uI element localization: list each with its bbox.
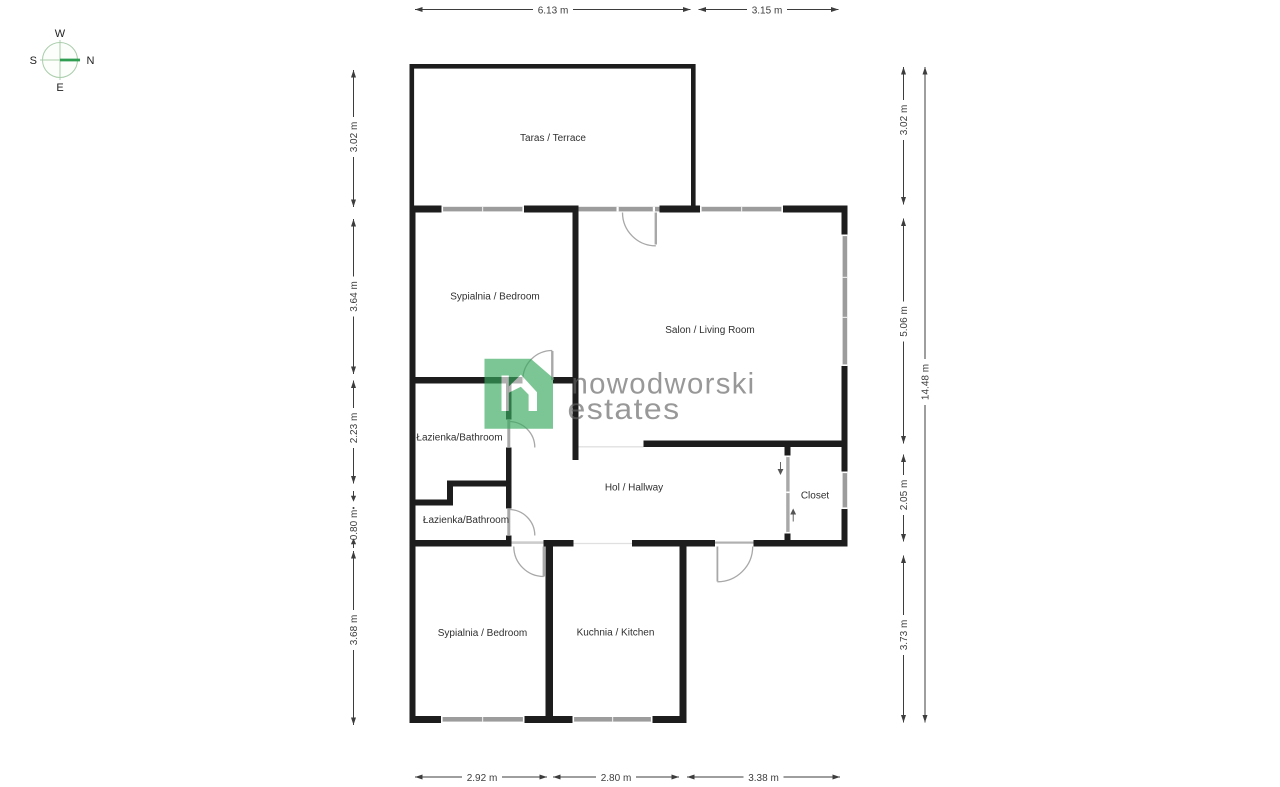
svg-text:3.73 m: 3.73 m <box>899 620 910 651</box>
svg-text:Hol / Hallway: Hol / Hallway <box>605 483 663 494</box>
svg-text:0.80 m: 0.80 m <box>349 510 360 541</box>
svg-text:3.38 m: 3.38 m <box>748 773 779 784</box>
svg-text:E: E <box>56 82 63 94</box>
svg-text:Łazienka/Bathroom: Łazienka/Bathroom <box>423 515 509 526</box>
svg-text:N: N <box>87 55 95 67</box>
svg-text:2.80 m: 2.80 m <box>601 773 632 784</box>
svg-text:Closet: Closet <box>801 491 830 502</box>
svg-text:Sypialnia / Bedroom: Sypialnia / Bedroom <box>438 628 528 639</box>
svg-text:5.06 m: 5.06 m <box>899 306 910 337</box>
svg-text:Taras / Terrace: Taras / Terrace <box>520 133 586 144</box>
svg-text:3.02 m: 3.02 m <box>899 105 910 136</box>
svg-text:W: W <box>55 28 66 40</box>
svg-text:estates: estates <box>568 393 681 426</box>
svg-text:2.92 m: 2.92 m <box>467 773 498 784</box>
svg-text:6.13 m: 6.13 m <box>538 6 569 17</box>
svg-text:Kuchnia / Kitchen: Kuchnia / Kitchen <box>577 628 655 639</box>
svg-text:Łazienka/Bathroom: Łazienka/Bathroom <box>416 433 502 444</box>
svg-text:S: S <box>30 55 37 67</box>
svg-text:14.48 m: 14.48 m <box>921 364 932 400</box>
svg-text:3.15 m: 3.15 m <box>752 6 783 17</box>
svg-text:3.64 m: 3.64 m <box>349 281 360 312</box>
svg-text:3.02 m: 3.02 m <box>349 122 360 153</box>
svg-text:Sypialnia / Bedroom: Sypialnia / Bedroom <box>450 292 540 303</box>
svg-text:2.23 m: 2.23 m <box>349 413 360 444</box>
svg-text:3.68 m: 3.68 m <box>349 615 360 646</box>
svg-text:2.05 m: 2.05 m <box>899 480 910 511</box>
svg-text:Salon / Living Room: Salon / Living Room <box>665 325 755 336</box>
